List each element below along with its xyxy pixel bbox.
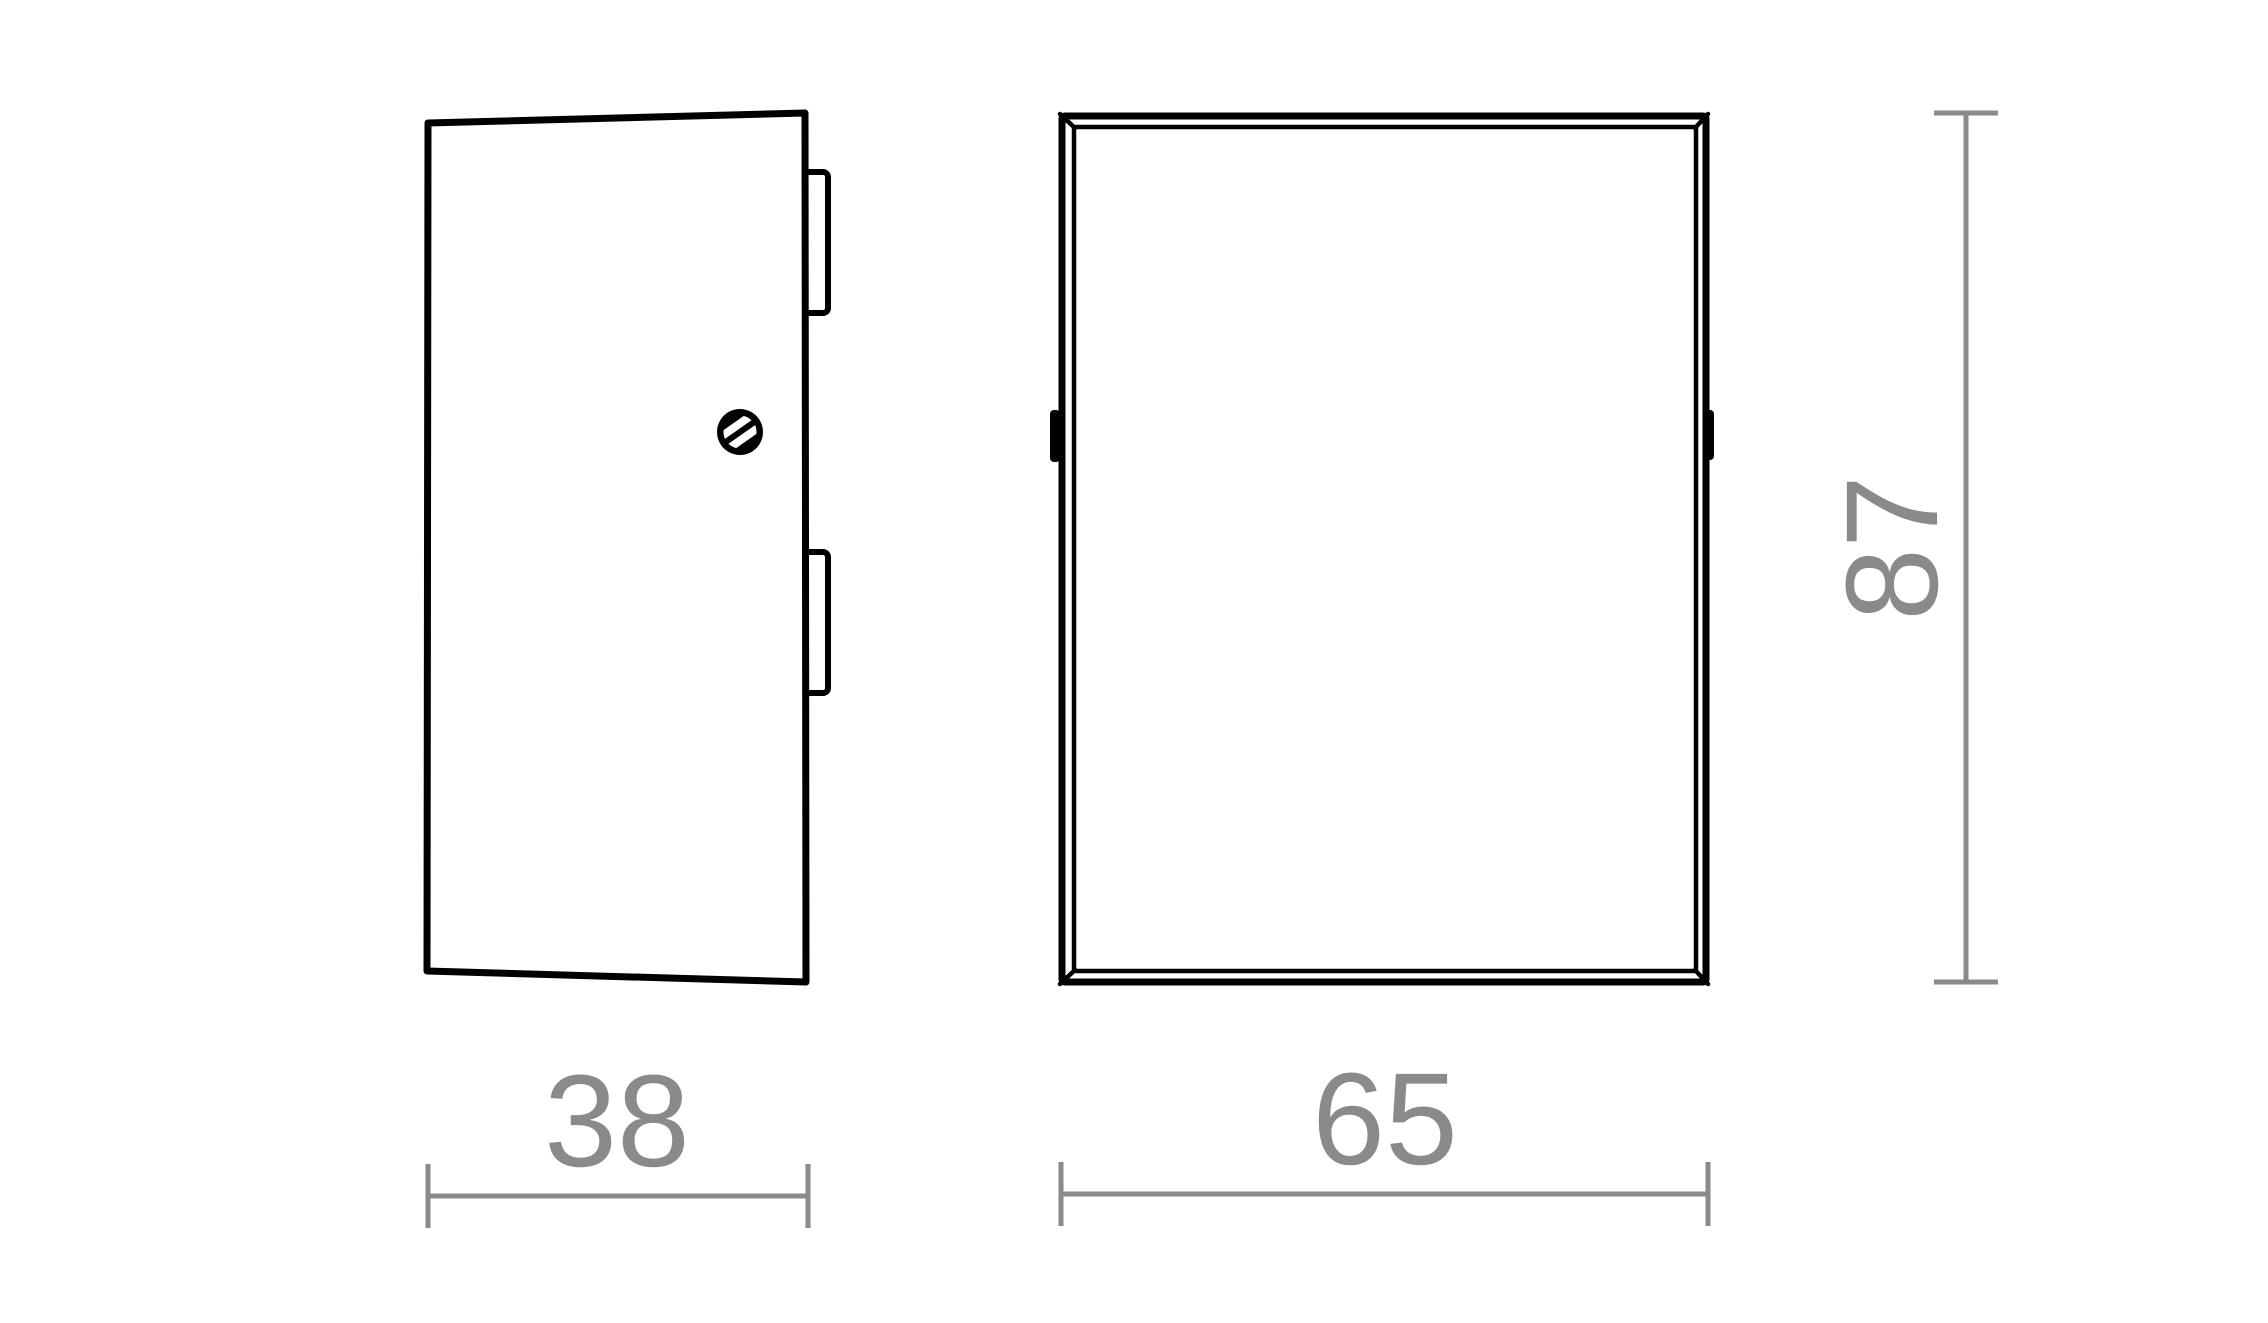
dim-87-label: 87 (1818, 475, 1965, 621)
dim-side-depth: 38 (428, 1047, 808, 1228)
side-view (427, 113, 828, 982)
front-view-outer-frame (1062, 116, 1706, 982)
dimension-drawing-canvas: 38 65 87 (0, 0, 2268, 1323)
dimension-drawing: 38 65 87 (0, 0, 2268, 1323)
dim-38-label: 38 (544, 1047, 690, 1194)
dim-front-width: 65 (1061, 1045, 1708, 1226)
dim-65-label: 65 (1312, 1045, 1458, 1192)
front-view (1050, 114, 1714, 984)
dim-front-height: 87 (1818, 113, 1998, 982)
side-view-body (427, 113, 806, 982)
